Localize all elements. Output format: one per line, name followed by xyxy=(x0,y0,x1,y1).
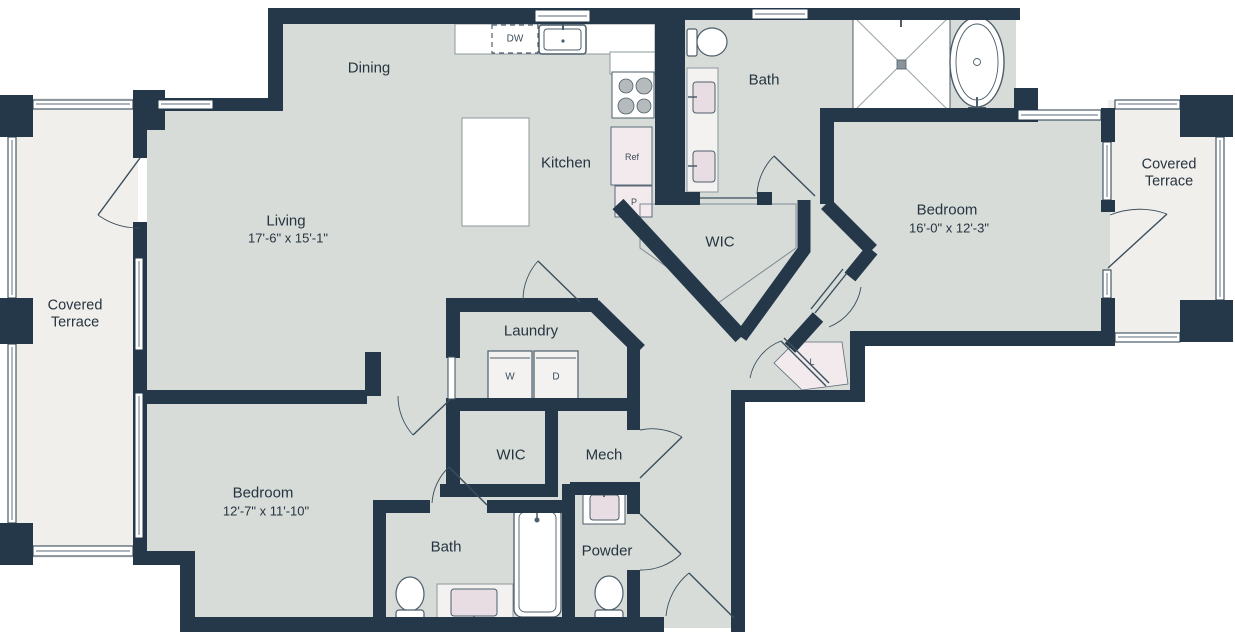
label-wic-second: WIC xyxy=(496,446,525,463)
label-living-dims: 17'-6" x 15'-1" xyxy=(248,232,328,247)
label-refrigerator: Ref xyxy=(625,152,639,162)
label-laundry: Laundry xyxy=(504,322,558,339)
label-dryer: D xyxy=(552,371,559,383)
label-powder: Powder xyxy=(582,542,633,559)
label-bath-second: Bath xyxy=(431,538,462,555)
label-dining: Dining xyxy=(348,59,391,76)
label-terrace-left: Covered Terrace xyxy=(48,297,103,330)
label-wic-main: WIC xyxy=(705,233,734,250)
shower-main-bath xyxy=(853,16,950,112)
stove xyxy=(612,72,654,118)
floor-plan: Dining Kitchen Living 17'-6" x 15'-1" Ba… xyxy=(0,0,1235,634)
toilet-main-bath xyxy=(687,28,727,56)
label-living: Living xyxy=(266,212,305,229)
toilet-powder xyxy=(595,576,623,622)
label-dishwasher: DW xyxy=(507,33,524,45)
toilet-second-bath xyxy=(396,577,424,622)
label-terrace-right: Covered Terrace xyxy=(1142,156,1197,189)
kitchen-island xyxy=(462,118,529,226)
floor-plan-drawing xyxy=(0,0,1235,634)
label-washer: W xyxy=(505,371,514,383)
label-bedroom-main: Bedroom xyxy=(917,201,978,218)
door-laundry-pocket xyxy=(448,357,455,399)
label-bath-main: Bath xyxy=(749,71,780,88)
tub-shower-second-bath xyxy=(514,507,561,617)
label-bedroom-second-dims: 12'-7" x 11'-10" xyxy=(223,505,309,520)
vanity-main-bath xyxy=(687,68,718,192)
label-linen: L xyxy=(809,357,814,367)
label-kitchen: Kitchen xyxy=(541,154,591,171)
label-pantry: P xyxy=(631,197,637,207)
label-bedroom-main-dims: 16'-0" x 12'-3" xyxy=(909,222,989,237)
label-mech: Mech xyxy=(586,446,623,463)
label-bedroom-second: Bedroom xyxy=(233,484,294,501)
